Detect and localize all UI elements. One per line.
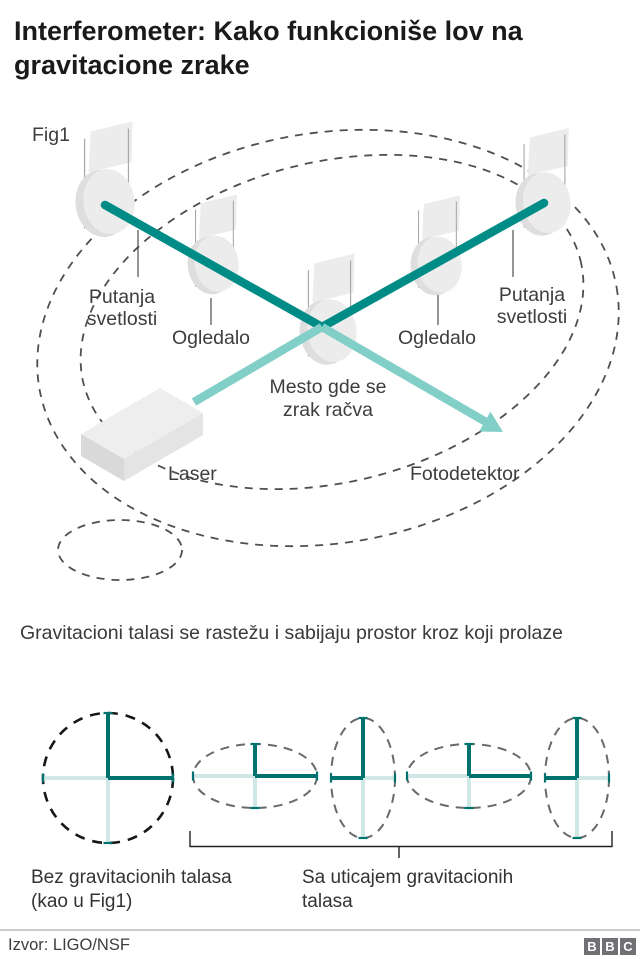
interferometer-diagram: Fig1 Putanja svetlosti Ogledalo Mesto gd…: [0, 105, 640, 600]
label-without-waves-line1: Bez gravitacionih talasa: [31, 866, 232, 890]
bbc-logo-block-c: C: [620, 938, 636, 955]
light-path-right-label-line1: Putanja: [499, 284, 565, 306]
light-path-right-label-line2: svetlosti: [497, 306, 567, 328]
spacetime-ring-small: [58, 520, 182, 580]
mirror-top-right: [512, 128, 575, 239]
fig1-label: Fig1: [32, 124, 70, 146]
label-with-waves-line1: Sa uticajem gravitacionih: [302, 866, 513, 890]
mirror-right: [407, 195, 465, 298]
wave-effect-diagram: [0, 688, 640, 860]
label-without-waves-line2: (kao u Fig1): [31, 890, 232, 914]
mirror-left-label: Ogledalo: [172, 327, 250, 349]
page-title: Interferometer: Kako funkcioniše lov na …: [14, 14, 589, 82]
light-path-left-label-line1: Putanja: [89, 286, 155, 308]
mirror-right-label: Ogledalo: [398, 327, 476, 349]
bracket: [190, 831, 612, 847]
laser-label: Laser: [168, 463, 217, 485]
bbc-logo-block-b1: B: [584, 938, 600, 955]
splitter-label-line2: zrak račva: [283, 399, 373, 421]
splitter-label-line1: Mesto gde se: [269, 376, 386, 398]
light-path-left-label-line2: svetlosti: [87, 308, 157, 330]
photodetector-label: Fotodetektor: [410, 463, 520, 485]
wave-caption: Gravitacioni talasi se rastežu i sabijaj…: [20, 622, 628, 645]
bbc-logo-block-b2: B: [602, 938, 618, 955]
bbc-logo: B B C: [584, 938, 636, 955]
infographic-page: Interferometer: Kako funkcioniše lov na …: [0, 0, 640, 959]
label-with-waves-line2: talasa: [302, 890, 513, 914]
source-credit: Izvor: LIGO/NSF: [8, 936, 130, 955]
label-without-waves: Bez gravitacionih talasa (kao u Fig1): [31, 866, 232, 914]
footer-divider: [0, 929, 640, 931]
label-with-waves: Sa uticajem gravitacionih talasa: [302, 866, 513, 914]
